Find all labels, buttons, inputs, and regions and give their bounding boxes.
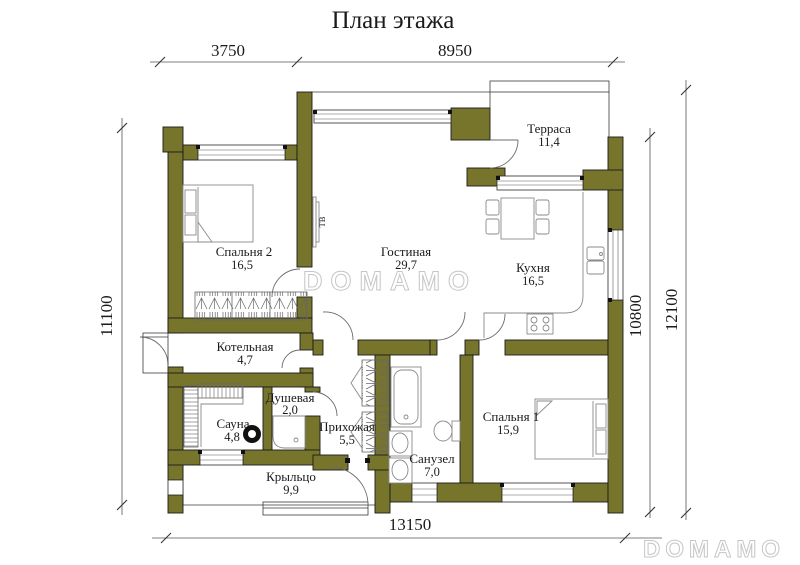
floor-plan-page: План этажа 3750 8950 11100 10800 12100 1…	[0, 0, 800, 565]
dimension-right: 10800 12100	[626, 80, 691, 520]
bed-icon	[183, 185, 253, 242]
window	[412, 483, 437, 502]
room-name: Терраса	[527, 121, 571, 136]
room-name: Гостиная	[381, 244, 431, 259]
window	[198, 450, 245, 465]
wardrobe-icon	[351, 360, 388, 452]
room-area: 15,9	[497, 423, 519, 437]
watermark-center: DOMAMO	[303, 266, 477, 296]
room-area: 9,9	[283, 483, 299, 497]
room-name: Котельная	[217, 339, 274, 354]
room-area: 11,4	[538, 135, 560, 149]
door-arc	[323, 312, 353, 340]
sink-icon	[587, 247, 604, 260]
shower-icon	[273, 416, 305, 448]
room-area: 16,5	[522, 274, 544, 288]
room-name: Санузел	[409, 451, 455, 466]
room-area: 2,0	[282, 403, 298, 417]
window	[496, 176, 584, 190]
room-area: 16,5	[231, 258, 253, 272]
toilet-icon	[434, 421, 460, 441]
door-arc	[330, 467, 368, 505]
room-porch: Крыльцо 9,9	[266, 469, 316, 497]
door-arc	[437, 312, 465, 340]
dim-11100: 11100	[97, 295, 116, 336]
bathtub-icon	[391, 367, 421, 427]
watermark-corner: DOMAMO	[643, 536, 785, 563]
door-arc	[282, 350, 300, 368]
room-bathroom: Санузел 7,0	[409, 451, 455, 479]
room-bedroom1: Спальня 1 15,9	[483, 409, 540, 437]
window	[168, 480, 183, 495]
dim-8950: 8950	[438, 41, 472, 60]
room-name: Кухня	[516, 260, 550, 275]
dimension-top: 3750 8950	[150, 41, 625, 67]
room-name: Сауна	[216, 416, 249, 431]
room-area: 5,5	[339, 433, 355, 447]
floor-plan-canvas: План этажа 3750 8950 11100 10800 12100 1…	[0, 0, 800, 565]
room-area: 4,7	[237, 353, 253, 367]
dim-13150: 13150	[389, 515, 432, 534]
dim-12100: 12100	[662, 289, 681, 332]
room-name: Спальня 2	[216, 244, 273, 259]
window	[313, 110, 452, 123]
room-area: 7,0	[424, 465, 440, 479]
room-name: Спальня 1	[483, 409, 540, 424]
room-terrace: Терраса 11,4	[527, 121, 571, 149]
window	[196, 145, 287, 160]
page-title: План этажа	[332, 7, 455, 34]
door-arc	[490, 140, 518, 168]
room-area: 29,7	[395, 258, 417, 272]
door-arc	[479, 314, 505, 340]
room-kitchen: Кухня 16,5	[516, 260, 550, 288]
room-boiler: Котельная 4,7	[217, 339, 274, 367]
dining-table-icon	[486, 198, 549, 239]
room-bedroom2: Спальня 2 16,5	[216, 244, 273, 272]
door-arc	[313, 392, 337, 416]
bed-icon	[535, 399, 608, 459]
tv-label: ТВ	[317, 216, 327, 227]
window	[608, 228, 623, 302]
window	[500, 483, 575, 502]
room-name: Прихожая	[319, 419, 375, 434]
dimension-bottom: 13150	[152, 515, 662, 543]
room-sauna: Сауна 4,8	[216, 416, 249, 444]
room-shower: Душевая 2,0	[266, 390, 315, 417]
door-arc	[140, 337, 168, 365]
room-area: 4,8	[224, 430, 240, 444]
room-name: Крыльцо	[266, 469, 316, 484]
dim-3750: 3750	[211, 41, 245, 60]
wardrobe-icon	[195, 292, 307, 320]
dimension-left: 11100	[97, 118, 127, 515]
furniture	[183, 185, 608, 483]
dim-10800: 10800	[626, 295, 645, 338]
stove-icon	[527, 314, 553, 334]
